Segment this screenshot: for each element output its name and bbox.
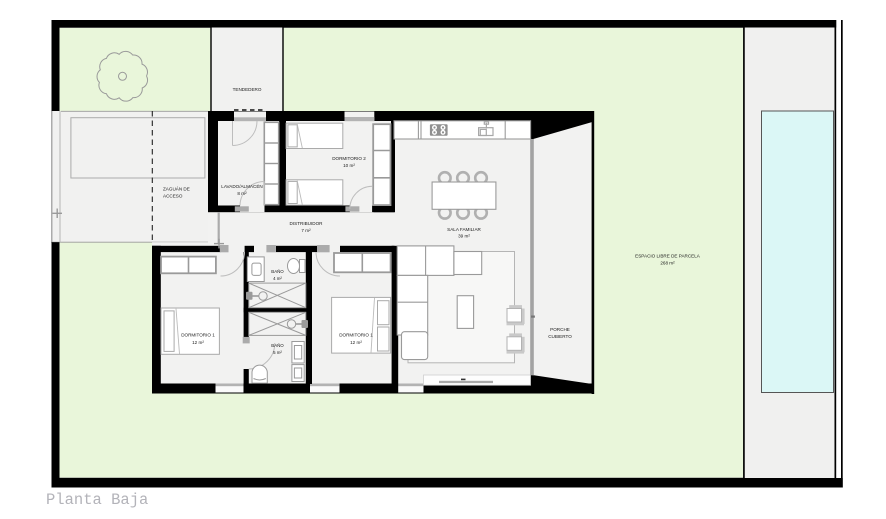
svg-text:SALA FAMILIAR: SALA FAMILIAR [447, 227, 481, 232]
svg-text:CUBIERTO: CUBIERTO [548, 334, 572, 339]
svg-text:BAÑO: BAÑO [271, 343, 284, 348]
svg-text:12 m²: 12 m² [350, 340, 362, 345]
svg-text:DORMITORIO 1: DORMITORIO 1 [181, 333, 215, 338]
svg-text:DORMITORIO 1: DORMITORIO 1 [339, 333, 373, 338]
svg-text:8 m²: 8 m² [237, 191, 247, 196]
svg-text:ACCESO: ACCESO [163, 194, 183, 199]
svg-text:PORCHE: PORCHE [550, 327, 570, 332]
svg-text:10 m²: 10 m² [343, 163, 355, 168]
svg-text:DORMITORIO 2: DORMITORIO 2 [332, 156, 366, 161]
svg-text:LAVADO/ALMACÉN: LAVADO/ALMACÉN [221, 183, 262, 189]
svg-text:268 m²: 268 m² [660, 261, 675, 266]
svg-text:Planta Baja: Planta Baja [46, 491, 148, 509]
svg-text:5 m²: 5 m² [273, 350, 282, 355]
svg-text:4 m²: 4 m² [273, 276, 282, 281]
svg-text:7 m²: 7 m² [301, 228, 311, 233]
svg-text:TENDEDERO: TENDEDERO [233, 87, 262, 92]
svg-text:ESPACIO LIBRE DE PARCELA: ESPACIO LIBRE DE PARCELA [635, 254, 701, 259]
svg-text:39 m²: 39 m² [458, 234, 470, 239]
svg-text:ZAGUÁN DE: ZAGUÁN DE [163, 186, 190, 192]
svg-text:BAÑO: BAÑO [271, 269, 284, 274]
svg-text:12 m²: 12 m² [192, 340, 204, 345]
svg-text:DISTRIBUIDOR: DISTRIBUIDOR [290, 221, 324, 226]
